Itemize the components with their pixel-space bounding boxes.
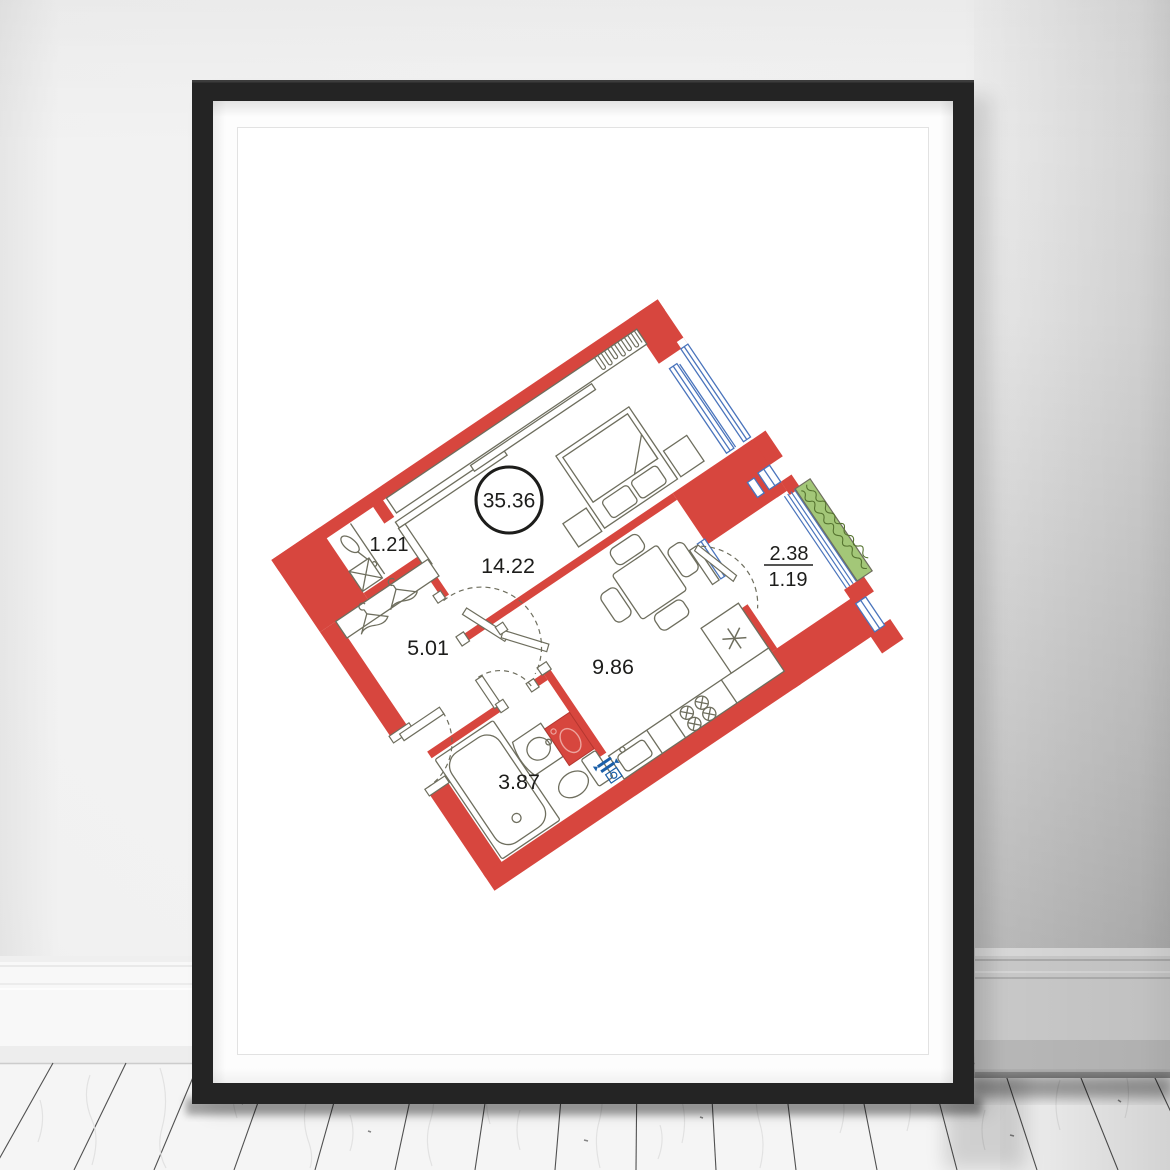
svg-text:35.36: 35.36 [483,490,536,513]
svg-text:3.87: 3.87 [498,770,540,794]
svg-text:1.21: 1.21 [370,534,409,556]
svg-text:1.19: 1.19 [769,569,808,591]
svg-text:5.01: 5.01 [407,636,449,660]
svg-text:9.86: 9.86 [592,655,634,679]
svg-text:2.38: 2.38 [770,543,809,565]
svg-text:14.22: 14.22 [481,554,535,578]
